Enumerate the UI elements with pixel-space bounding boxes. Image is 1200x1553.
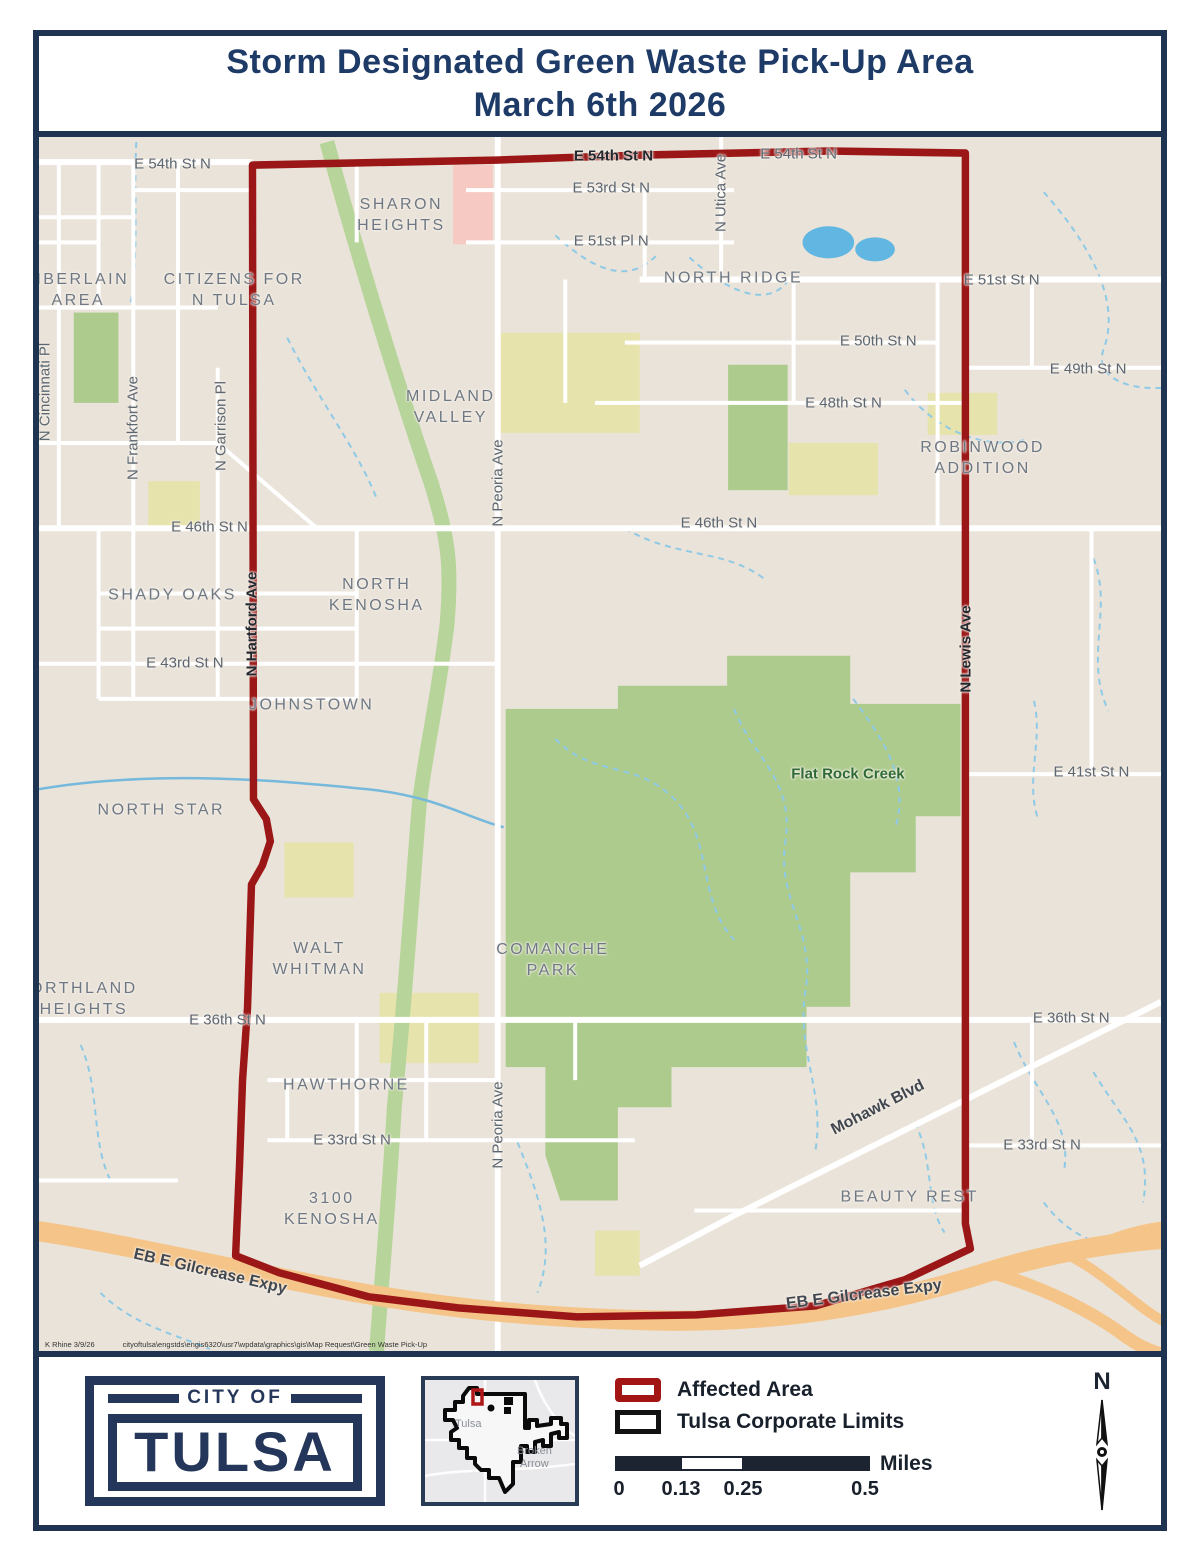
map-label: HAWTHORNE	[283, 1076, 410, 1097]
affected-area-label: Affected Area	[677, 1378, 813, 1402]
map-label: ORTHLAND HEIGHTS	[39, 979, 138, 1021]
map-label: MIDLAND VALLEY	[406, 387, 496, 429]
affected-area-swatch	[615, 1378, 661, 1402]
map-label: N Peoria Ave	[489, 1082, 506, 1169]
north-arrow: N	[1081, 1368, 1123, 1514]
page-subtitle: March 6th 2026	[474, 84, 727, 127]
scalebar-segment-1	[617, 1458, 682, 1469]
scalebar-segment-3	[742, 1458, 868, 1469]
map-label: E 41st St N	[1053, 763, 1129, 780]
logo-top: CITY OF	[108, 1387, 362, 1409]
scalebar-tick-013: 0.13	[662, 1478, 701, 1501]
logo-city-of-text: CITY OF	[187, 1387, 283, 1409]
map-label: COMANCHE PARK	[496, 941, 609, 983]
map-label: N Utica Ave	[713, 154, 730, 232]
map-label: NORTH RIDGE	[664, 269, 803, 290]
map-label: EB E Gilcrease Expy	[131, 1246, 288, 1299]
map-label: ROBINWOOD ADDITION	[920, 438, 1045, 480]
footer: CITY OF TULSA Tulsa Broken	[39, 1351, 1161, 1525]
map-sheet: Storm Designated Green Waste Pick-Up Are…	[33, 30, 1167, 1531]
map-label: N Frankfort Ave	[125, 376, 142, 480]
inset-map-canvas: Tulsa Broken Arrow	[425, 1380, 575, 1502]
map-label: E 43rd St N	[146, 654, 224, 671]
corporate-limits-swatch	[615, 1410, 661, 1434]
scalebar-tick-0: 0	[613, 1478, 624, 1501]
corporate-limits-label: Tulsa Corporate Limits	[677, 1410, 904, 1434]
map-label: E 53rd St N	[572, 179, 650, 196]
map-label-layer: E 54th St NE 54th St NE 54th St NE 53rd …	[39, 137, 1161, 1351]
scalebar-tick-025: 0.25	[724, 1478, 763, 1501]
map-label: WALT WHITMAN	[273, 939, 367, 981]
logo-bar-left	[108, 1394, 179, 1403]
north-arrow-label: N	[1093, 1368, 1110, 1396]
map-area[interactable]: E 54th St NE 54th St NE 54th St NE 53rd …	[39, 137, 1161, 1351]
map-label: NORTH STAR	[98, 800, 226, 821]
scalebar: Miles 0 0.13 0.25 0.5	[615, 1452, 1045, 1504]
map-label: Flat Rock Creek	[791, 766, 904, 783]
inset-tulsa-label: Tulsa	[455, 1418, 482, 1430]
map-label: E 46th St N	[171, 518, 248, 535]
legend: Affected Area Tulsa Corporate Limits Mil…	[615, 1378, 1045, 1504]
scalebar-bar	[615, 1456, 870, 1471]
page-title: Storm Designated Green Waste Pick-Up Are…	[226, 41, 973, 84]
inset-arrow-label: Arrow	[520, 1458, 549, 1470]
map-label: N Hartford Ave	[244, 571, 261, 676]
map-label: 3100 KENOSHA	[284, 1189, 380, 1231]
map-label: N Peoria Ave	[489, 439, 506, 526]
scalebar-tick-05: 0.5	[851, 1478, 879, 1501]
scalebar-unit: Miles	[880, 1452, 933, 1476]
map-label: E 49th St N	[1050, 360, 1127, 377]
map-label: E 51st St N	[964, 272, 1040, 289]
logo-tulsa-text: TULSA	[108, 1414, 362, 1491]
map-label: N Lewis Ave	[957, 606, 974, 693]
credit-author: K Rhine 3/9/26	[45, 1340, 95, 1349]
map-label: SHADY OAKS	[108, 585, 237, 606]
north-arrow-needle	[1084, 1396, 1120, 1514]
map-label: E 36th St N	[1033, 1010, 1110, 1027]
inset-locator-map: Tulsa Broken Arrow	[421, 1376, 579, 1506]
map-label: CITIZENS FOR N TULSA	[164, 270, 305, 312]
map-label: MBERLAIN AREA	[39, 270, 129, 312]
map-label: Mohawk Blvd	[829, 1077, 928, 1139]
map-label: BEAUTY REST	[841, 1188, 979, 1209]
legend-item-affected-area: Affected Area	[615, 1378, 1045, 1402]
logo-bar-right	[291, 1394, 362, 1403]
map-label: E 48th St N	[805, 394, 882, 411]
scalebar-segment-2	[682, 1458, 742, 1469]
inset-broken-label: Broken	[517, 1445, 552, 1457]
map-label: JOHNSTOWN	[249, 696, 374, 717]
map-label: E 33rd St N	[1003, 1136, 1081, 1153]
map-label: N Garrison Pl	[212, 381, 229, 471]
map-label: E 36th St N	[189, 1011, 266, 1028]
map-credits: K Rhine 3/9/26 cityoftulsa\engstds\engis…	[45, 1340, 427, 1349]
city-of-tulsa-logo: CITY OF TULSA	[85, 1376, 385, 1506]
map-label: NORTH KENOSHA	[329, 575, 425, 617]
credit-path: cityoftulsa\engstds\engis6320\usr7\wpdat…	[123, 1340, 427, 1349]
map-label: N Cincinnati Pl	[39, 343, 53, 441]
map-label: E 46th St N	[681, 515, 758, 532]
legend-item-corporate-limits: Tulsa Corporate Limits	[615, 1410, 1045, 1434]
map-label: EB E Gilcrease Expy	[785, 1277, 943, 1314]
map-label: E 54th St N	[760, 145, 837, 162]
map-label: E 51st Pl N	[574, 233, 649, 250]
title-box: Storm Designated Green Waste Pick-Up Are…	[39, 36, 1161, 137]
map-label: E 54th St N	[134, 155, 211, 172]
map-label: E 50th St N	[840, 332, 917, 349]
map-label: E 33rd St N	[313, 1131, 391, 1148]
map-label: E 54th St N	[574, 148, 653, 165]
map-label: SHARON HEIGHTS	[357, 195, 446, 237]
